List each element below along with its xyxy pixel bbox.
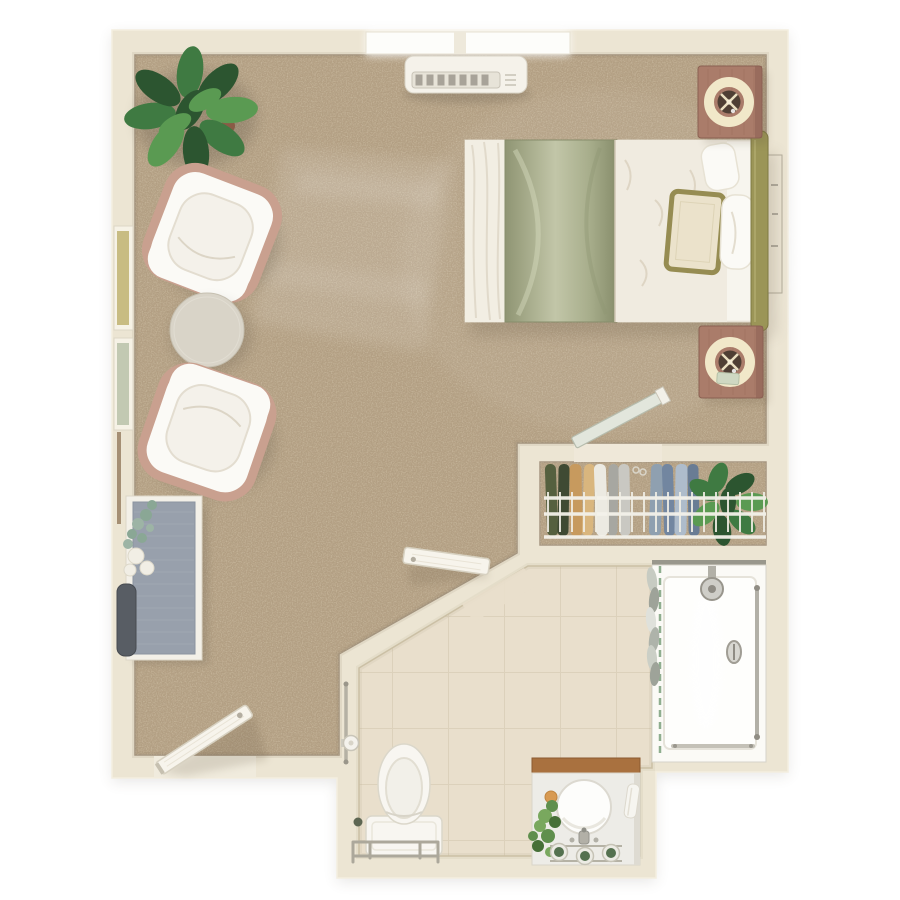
wall-baseboard: [117, 432, 121, 524]
bedside-book: [717, 372, 740, 385]
window-top: [366, 30, 570, 56]
window-mullion: [454, 32, 466, 54]
pillow-accent: [666, 191, 725, 273]
bed-runner: [505, 140, 617, 322]
vanity-wood-edge: [532, 758, 640, 773]
round-sink: [557, 780, 611, 834]
left-window-lower: [114, 338, 133, 430]
closet-threshold: [574, 444, 662, 462]
vanity: [528, 758, 640, 865]
left-window-upper: [114, 226, 133, 330]
foot-sheet: [465, 140, 507, 322]
floor-plan-canvas: [0, 0, 900, 900]
nightstand-top: [698, 66, 768, 144]
flush-handle: [354, 818, 363, 827]
pillow-white: [720, 194, 755, 269]
ac-unit: [403, 56, 531, 103]
shower-frame-edge: [652, 560, 766, 565]
headboard: [751, 131, 768, 331]
studio-floor-plan: [0, 0, 900, 900]
bed: [465, 131, 776, 336]
shower: [645, 560, 766, 762]
desk-chair: [117, 584, 136, 656]
nightstand-bottom: [699, 326, 769, 404]
clothes-item: [607, 464, 618, 536]
